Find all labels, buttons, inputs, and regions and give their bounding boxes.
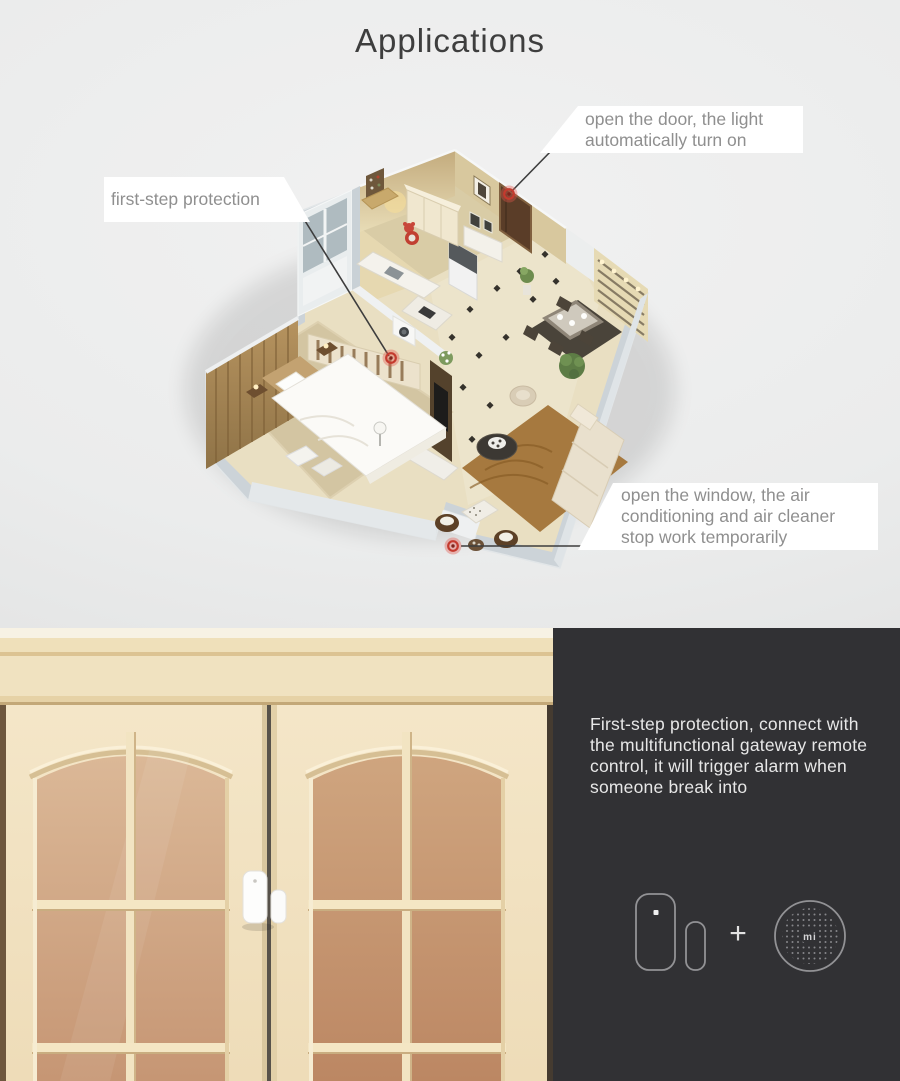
- sensor-marker-living-window: [445, 538, 462, 555]
- callout-door-light: open the door, the light automatically t…: [540, 106, 803, 153]
- leader-line-door: [511, 149, 553, 192]
- device-icons-svg: + mi: [620, 885, 860, 995]
- panel-description: First-step protection, connect with the …: [553, 628, 888, 798]
- sensor-magnet-icon: [686, 922, 705, 970]
- callout-window-air: open the window, the air conditioning an…: [578, 483, 878, 550]
- left-door-window: [30, 732, 232, 1081]
- callout-window-air-text: open the window, the air conditioning an…: [621, 485, 835, 548]
- right-door-window: [306, 732, 508, 1081]
- mi-logo: mi: [803, 932, 817, 943]
- product-page: Applications: [0, 0, 900, 1081]
- door-sensor-icon: [636, 894, 705, 970]
- callout-first-step-text: first-step protection: [111, 189, 260, 210]
- door-photo: [0, 628, 553, 1081]
- callout-door-light-text: open the door, the light automatically t…: [585, 109, 763, 151]
- sensor-marker-door: [501, 186, 518, 203]
- doors-illustration: [0, 628, 553, 1081]
- sensor-marker-window: [383, 350, 400, 367]
- info-panel: First-step protection, connect with the …: [553, 628, 900, 1081]
- sensor-led-icon: [654, 910, 659, 915]
- gateway-icon: mi: [775, 901, 845, 971]
- callout-first-step: first-step protection: [104, 177, 310, 222]
- device-icons: + mi: [620, 885, 860, 1000]
- applications-section: Applications: [0, 0, 900, 628]
- plus-sign: +: [729, 917, 747, 950]
